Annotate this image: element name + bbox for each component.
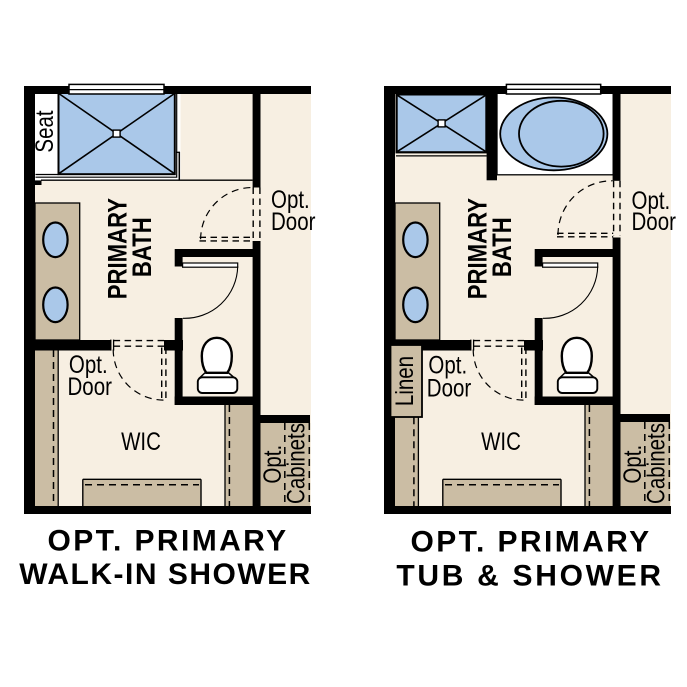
svg-text:WIC: WIC <box>121 427 161 455</box>
svg-text:BATH: BATH <box>488 217 518 277</box>
svg-text:BATH: BATH <box>128 217 158 277</box>
svg-text:Door: Door <box>68 372 113 400</box>
svg-text:Cabinets: Cabinets <box>281 423 309 504</box>
svg-text:Cabinets: Cabinets <box>641 423 669 504</box>
svg-text:Door: Door <box>632 207 677 235</box>
svg-text:TUB & SHOWER: TUB & SHOWER <box>396 559 663 592</box>
svg-text:Linen: Linen <box>390 356 418 406</box>
svg-text:Door: Door <box>427 374 472 402</box>
svg-text:OPT. PRIMARY: OPT. PRIMARY <box>47 524 288 557</box>
svg-text:WIC: WIC <box>481 427 521 455</box>
svg-text:WALK-IN SHOWER: WALK-IN SHOWER <box>19 558 312 591</box>
svg-text:Door: Door <box>271 207 316 235</box>
svg-text:OPT. PRIMARY: OPT. PRIMARY <box>410 525 651 558</box>
